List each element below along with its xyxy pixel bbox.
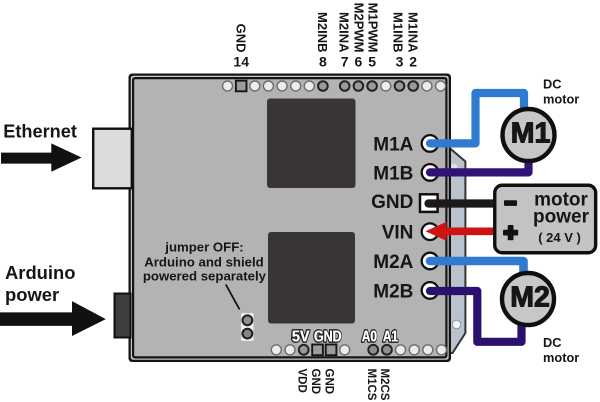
svg-text:M2PWM: M2PWM — [351, 3, 366, 53]
svg-text:DC: DC — [543, 335, 561, 350]
svg-text:GND: GND — [371, 192, 413, 213]
svg-text:3: 3 — [396, 54, 404, 70]
svg-text:GND: GND — [314, 328, 342, 345]
svg-text:Arduino: Arduino — [5, 262, 75, 283]
svg-text:powered separately: powered separately — [143, 268, 267, 283]
svg-text:GND: GND — [309, 369, 321, 395]
svg-text:power: power — [5, 284, 59, 305]
svg-text:5V: 5V — [292, 328, 310, 345]
svg-text:motor: motor — [543, 350, 579, 365]
svg-text:8: 8 — [319, 54, 327, 70]
svg-text:M2INB: M2INB — [315, 12, 330, 52]
svg-text:5: 5 — [368, 54, 376, 70]
svg-text:M2: M2 — [510, 282, 550, 314]
svg-text:Ethernet: Ethernet — [3, 122, 77, 142]
svg-text:M2A: M2A — [373, 252, 413, 273]
svg-text:M2INA: M2INA — [337, 12, 352, 53]
svg-text:M1INB: M1INB — [391, 12, 406, 52]
svg-text:A0: A0 — [362, 328, 377, 345]
svg-text:( 24 V ): ( 24 V ) — [538, 230, 581, 245]
svg-text:2: 2 — [409, 54, 417, 70]
svg-text:jumper OFF:: jumper OFF: — [164, 239, 243, 254]
svg-text:M1B: M1B — [373, 163, 413, 184]
svg-text:M1PWM: M1PWM — [365, 3, 380, 53]
svg-text:GND: GND — [322, 369, 334, 395]
svg-text:GND: GND — [233, 24, 248, 53]
svg-text:7: 7 — [341, 54, 349, 70]
svg-text:VDD: VDD — [296, 369, 308, 393]
svg-text:M1: M1 — [511, 118, 551, 150]
svg-text:DC: DC — [543, 77, 561, 92]
svg-text:motor: motor — [543, 92, 579, 107]
svg-text:M2B: M2B — [373, 281, 413, 302]
svg-text:6: 6 — [355, 54, 363, 70]
svg-text:power: power — [533, 206, 590, 227]
svg-text:Arduino and shield: Arduino and shield — [144, 254, 263, 269]
svg-text:M1CS: M1CS — [365, 369, 377, 401]
svg-text:14: 14 — [233, 54, 249, 70]
svg-text:VIN: VIN — [382, 223, 414, 244]
svg-text:A1: A1 — [383, 328, 398, 345]
svg-text:M1INA: M1INA — [406, 12, 421, 53]
svg-text:M1A: M1A — [373, 134, 413, 155]
svg-text:M2CS: M2CS — [378, 369, 390, 401]
